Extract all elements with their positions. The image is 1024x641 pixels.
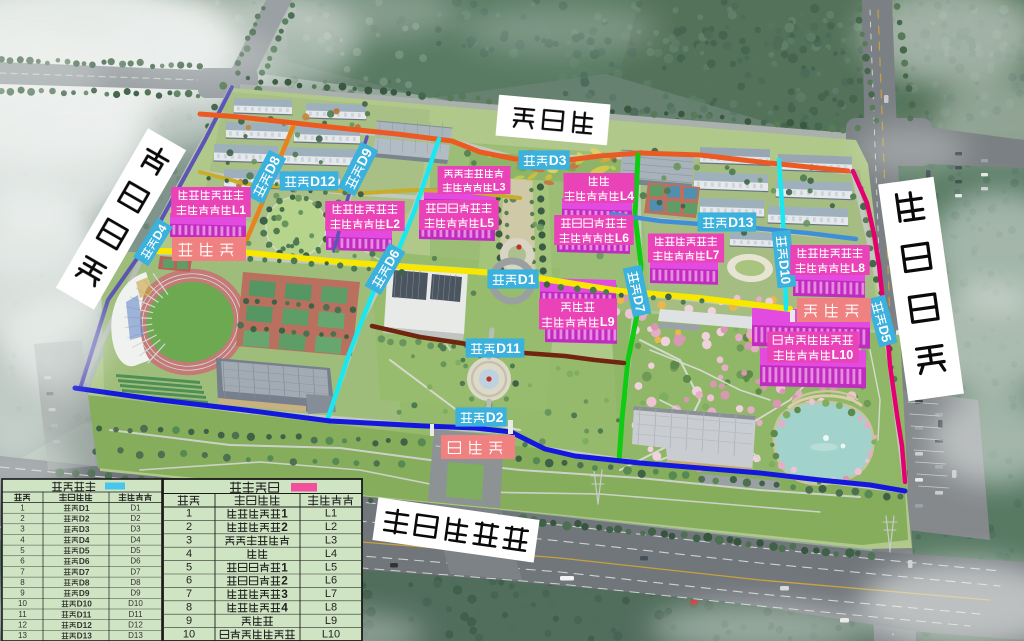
- svg-text:L5: L5: [480, 216, 494, 230]
- svg-text:L8: L8: [851, 261, 865, 275]
- svg-text:10: 10: [18, 599, 27, 608]
- svg-text:D13: D13: [728, 215, 754, 230]
- svg-text:D5: D5: [130, 546, 141, 555]
- svg-text:D13: D13: [77, 631, 93, 641]
- svg-text:9: 9: [186, 615, 192, 627]
- svg-text:L7: L7: [325, 588, 337, 600]
- svg-text:1: 1: [281, 507, 288, 521]
- svg-text:D8: D8: [130, 578, 141, 587]
- svg-text:D1: D1: [518, 272, 536, 287]
- svg-text:L7: L7: [706, 250, 719, 262]
- svg-text:3: 3: [20, 525, 25, 534]
- svg-text:D7: D7: [79, 567, 90, 577]
- svg-text:L8: L8: [325, 602, 337, 614]
- svg-text:L6: L6: [615, 231, 629, 245]
- svg-text:D13: D13: [128, 631, 143, 640]
- svg-text:L10: L10: [832, 348, 854, 362]
- svg-text:1: 1: [186, 508, 192, 520]
- svg-text:D3: D3: [549, 153, 567, 168]
- svg-text:2: 2: [20, 514, 25, 523]
- svg-text:D12: D12: [310, 174, 336, 189]
- svg-text:D5: D5: [79, 545, 90, 555]
- svg-text:D1: D1: [79, 503, 90, 513]
- svg-text:12: 12: [18, 621, 27, 630]
- svg-text:L1: L1: [325, 508, 337, 520]
- svg-text:D4: D4: [130, 535, 141, 544]
- svg-text:7: 7: [20, 567, 25, 576]
- svg-text:6: 6: [20, 557, 25, 566]
- svg-text:3: 3: [281, 587, 288, 601]
- svg-text:11: 11: [18, 610, 27, 619]
- svg-text:D12: D12: [77, 620, 93, 630]
- svg-text:2: 2: [281, 520, 288, 534]
- svg-text:D12: D12: [128, 621, 143, 630]
- svg-text:D2: D2: [79, 514, 90, 524]
- svg-text:L3: L3: [493, 182, 506, 194]
- svg-text:4: 4: [281, 601, 288, 615]
- svg-text:4: 4: [20, 535, 25, 544]
- svg-text:4: 4: [186, 548, 192, 560]
- svg-text:D3: D3: [79, 524, 90, 534]
- svg-text:L6: L6: [325, 575, 337, 587]
- svg-text:7: 7: [186, 588, 192, 600]
- svg-text:L1: L1: [232, 203, 246, 217]
- svg-text:L3: L3: [325, 535, 337, 547]
- svg-text:10: 10: [183, 628, 195, 640]
- svg-text:L10: L10: [322, 628, 340, 640]
- svg-text:2: 2: [281, 574, 288, 588]
- svg-text:3: 3: [186, 535, 192, 547]
- svg-text:5: 5: [186, 561, 192, 573]
- svg-text:D11: D11: [77, 609, 92, 619]
- svg-text:D6: D6: [130, 557, 141, 566]
- svg-text:D11: D11: [128, 610, 143, 619]
- svg-text:D6: D6: [79, 556, 90, 566]
- svg-text:D9: D9: [130, 589, 141, 598]
- svg-text:D2: D2: [130, 514, 141, 523]
- svg-text:D8: D8: [79, 577, 90, 587]
- svg-text:D10: D10: [77, 599, 93, 609]
- svg-text:L9: L9: [325, 615, 337, 627]
- svg-text:D9: D9: [79, 588, 90, 598]
- svg-text:8: 8: [186, 602, 192, 614]
- svg-text:L9: L9: [600, 315, 615, 329]
- svg-text:6: 6: [186, 575, 192, 587]
- svg-text:L2: L2: [386, 217, 400, 231]
- svg-text:L4: L4: [325, 548, 337, 560]
- svg-text:D11: D11: [496, 341, 521, 356]
- svg-text:L2: L2: [325, 521, 337, 533]
- svg-text:9: 9: [20, 589, 25, 598]
- svg-text:8: 8: [20, 578, 25, 587]
- svg-text:D1: D1: [130, 503, 141, 512]
- svg-text:D3: D3: [130, 525, 141, 534]
- svg-text:1: 1: [281, 560, 288, 574]
- svg-text:5: 5: [20, 546, 25, 555]
- svg-text:L5: L5: [325, 561, 337, 573]
- svg-text:2: 2: [186, 521, 192, 533]
- svg-text:D10: D10: [128, 599, 143, 608]
- svg-text:D2: D2: [486, 410, 504, 425]
- svg-text:1: 1: [20, 503, 25, 512]
- svg-text:D7: D7: [130, 567, 141, 576]
- svg-text:13: 13: [18, 631, 27, 640]
- svg-text:L4: L4: [620, 189, 634, 203]
- svg-text:D4: D4: [79, 535, 90, 545]
